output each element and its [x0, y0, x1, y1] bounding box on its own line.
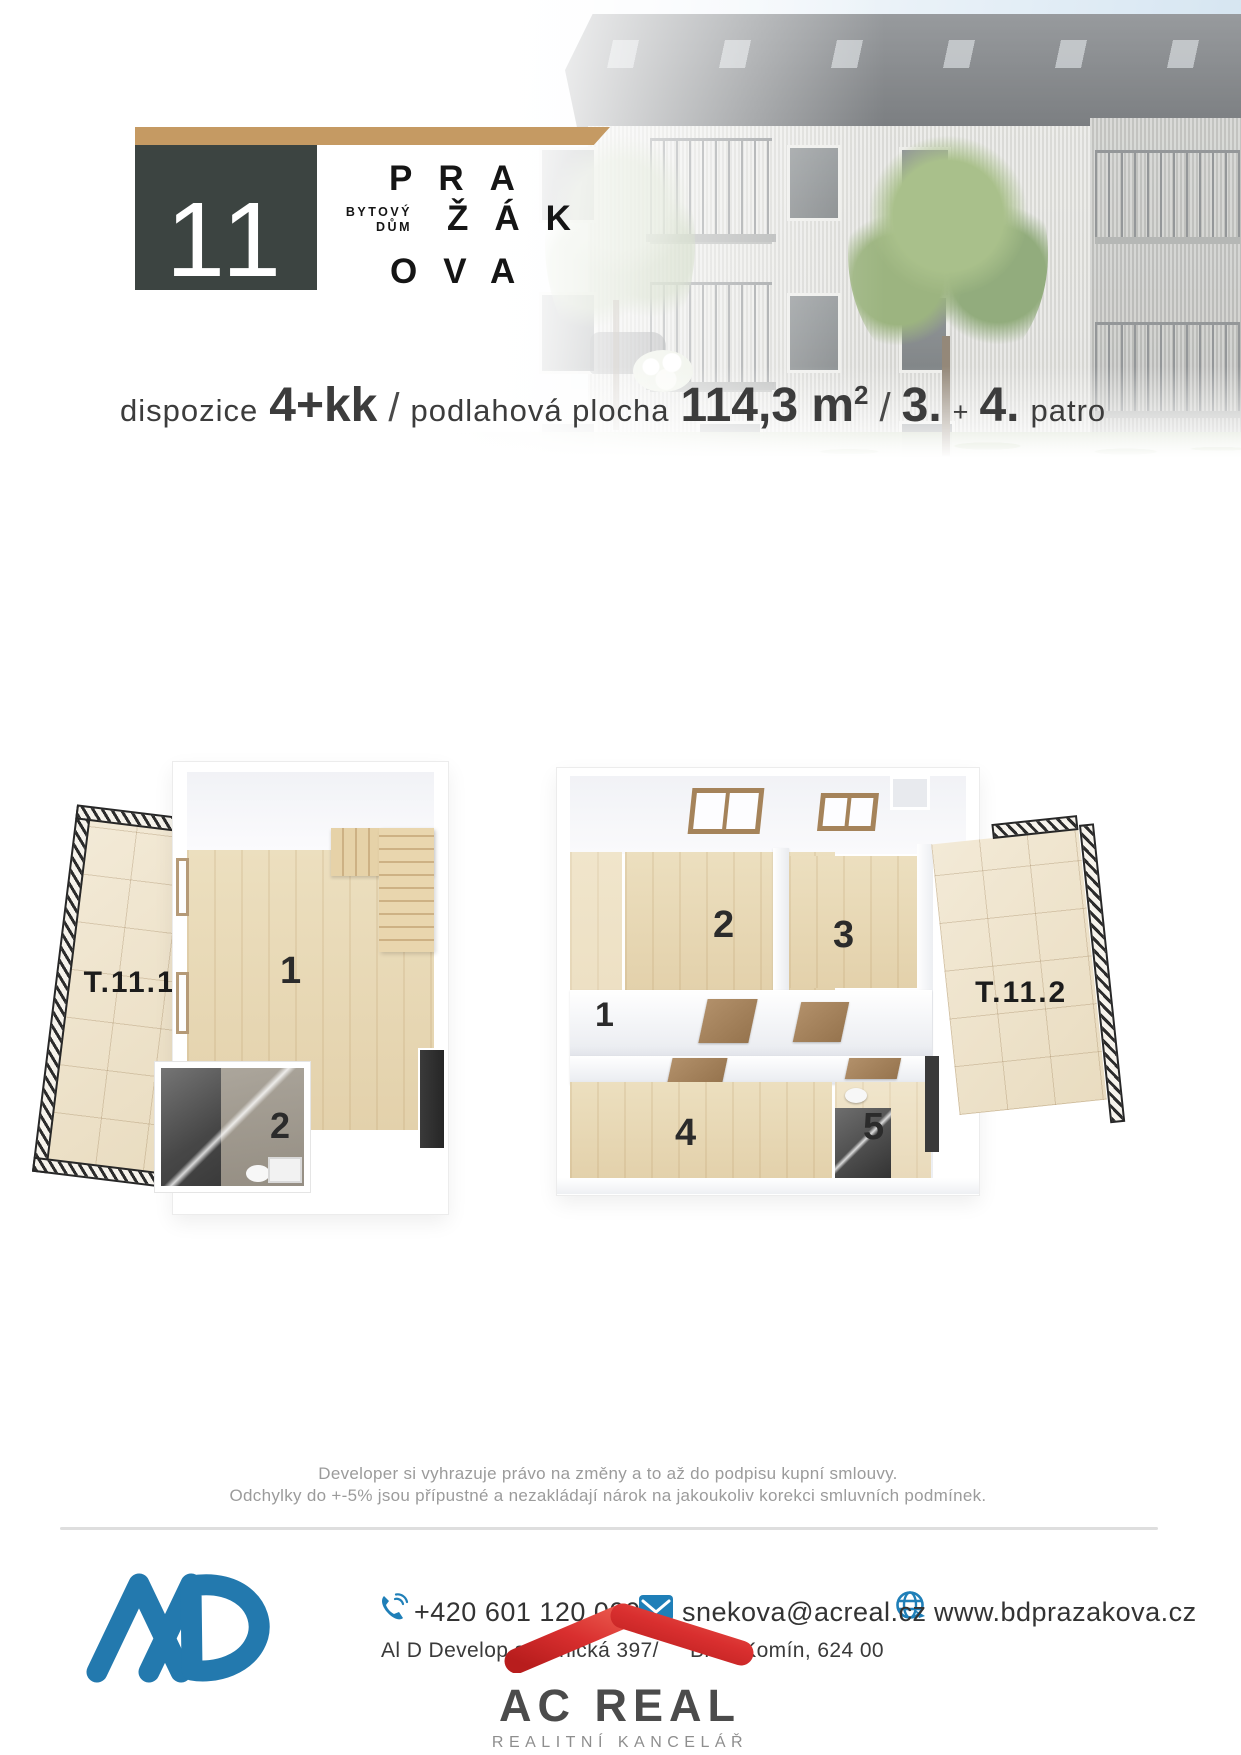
terrace-T111-label: T.11.1	[70, 966, 190, 1000]
unit-specs-line: dispozice 4+kk / podlahová plocha 114,3 …	[120, 378, 1200, 433]
window-slot	[176, 972, 189, 1034]
floorplan-upper-level: 1 2 3 4 5 T.11.2	[545, 756, 1130, 1221]
building-type-line1: BYTOVÝ	[338, 206, 412, 219]
disclaimer-line1: Developer si vyhrazuje právo na změny a …	[0, 1463, 1216, 1485]
floorplan-lower-level: T.11.1 1 2	[48, 756, 448, 1221]
terrace-railing	[991, 815, 1078, 839]
agency-name: AC REAL	[370, 1680, 870, 1732]
kitchen-counter	[420, 1050, 444, 1148]
shower-tray	[268, 1157, 302, 1183]
dark-wall-strip	[925, 1056, 939, 1152]
window-slot	[176, 858, 189, 916]
room-number-1: 1	[595, 998, 614, 1032]
specs-slash-2: /	[880, 386, 891, 431]
unit-number: 11	[166, 192, 286, 290]
project-name-row2: ŽÁK	[447, 201, 597, 236]
toilet	[845, 1088, 867, 1103]
room-number-3: 3	[833, 916, 854, 954]
building-type-line2: DŮM	[338, 221, 412, 234]
floor-first: 3.	[902, 378, 942, 433]
flyer-page: 11 PRA ŽÁK OVA BYTOVÝ DŮM dispozice 4+kk…	[0, 0, 1241, 1755]
layout-label: dispozice	[120, 393, 258, 429]
accent-bar	[135, 127, 610, 145]
area-label: podlahová plocha	[411, 393, 670, 429]
staircase	[379, 828, 434, 952]
layout-value: 4+kk	[269, 378, 377, 433]
skylight-window	[688, 788, 765, 834]
wall-room2-room3	[773, 848, 789, 994]
terrace-T112-label: T.11.2	[953, 976, 1089, 1010]
project-name-row3: OVA	[390, 254, 541, 289]
closet-niche	[890, 776, 930, 810]
door-room5	[845, 1058, 901, 1079]
room-number-1: 1	[280, 952, 301, 990]
room-number-5: 5	[863, 1108, 884, 1146]
room-number-2: 2	[713, 906, 734, 944]
agency-tagline: REALITNÍ KANCELÁŘ	[370, 1734, 870, 1752]
door-room2	[698, 999, 757, 1043]
bottom-wall	[557, 1178, 979, 1194]
ad-developer-logo	[85, 1562, 280, 1687]
unit-number-panel: 11	[135, 145, 317, 290]
footer-divider	[60, 1527, 1158, 1530]
area-exponent: 2	[854, 380, 868, 410]
website-url[interactable]: www.bdprazakova.cz	[934, 1597, 1197, 1628]
phone-icon	[377, 1593, 409, 1625]
terrace-railing	[1079, 823, 1125, 1123]
floor-second: 4.	[979, 378, 1019, 433]
disclaimer-line2: Odchylky do +-5% jsou přípustné a nezakl…	[0, 1485, 1216, 1507]
toilet	[246, 1165, 270, 1182]
door-room3	[793, 1002, 850, 1042]
project-name-row1: PRA	[389, 161, 541, 196]
room4-floor	[570, 1082, 832, 1178]
door-room4	[667, 1058, 727, 1082]
area-value: 114,3 m2	[681, 378, 869, 433]
acreal-roof-icon	[495, 1601, 760, 1673]
specs-slash-1: /	[388, 386, 399, 431]
floor-plus: +	[953, 397, 969, 428]
room-number-4: 4	[675, 1114, 696, 1152]
room-number-2: 2	[270, 1108, 290, 1144]
floor-label: patro	[1030, 393, 1106, 429]
skylight-window	[817, 793, 879, 831]
disclaimer: Developer si vyhrazuje právo na změny a …	[0, 1463, 1216, 1507]
terrace-T112: T.11.2	[931, 829, 1107, 1115]
